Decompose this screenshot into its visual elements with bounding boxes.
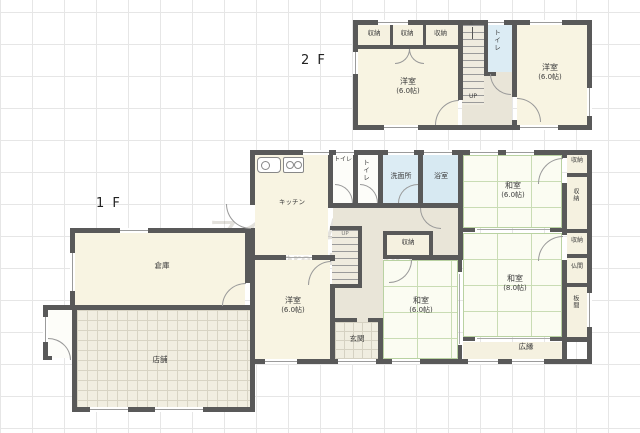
wall bbox=[567, 283, 587, 287]
window bbox=[303, 150, 329, 155]
wall bbox=[255, 255, 286, 260]
room-size: (6.0帖) bbox=[513, 73, 587, 81]
room-size: (6.0帖) bbox=[368, 87, 448, 95]
closet-label: 収納 bbox=[387, 239, 429, 246]
room-label: 浴室 bbox=[424, 172, 458, 180]
closet-label: 収納 bbox=[565, 238, 589, 245]
wall bbox=[250, 359, 255, 412]
window bbox=[90, 407, 128, 412]
room-label: 店舗 bbox=[138, 356, 182, 365]
closet-label: 収納 bbox=[565, 158, 589, 165]
sliding-door bbox=[477, 229, 550, 230]
wall bbox=[412, 255, 462, 260]
window bbox=[70, 253, 75, 291]
floor2-label: 2 F bbox=[301, 53, 327, 68]
partition-nub bbox=[458, 260, 462, 272]
room-name: 和室 bbox=[383, 296, 459, 305]
window bbox=[468, 359, 498, 364]
window bbox=[336, 150, 354, 155]
window bbox=[506, 150, 534, 155]
stairs-up-label: UP bbox=[333, 231, 357, 237]
stairs-up-arrow bbox=[472, 27, 473, 39]
window bbox=[384, 125, 418, 130]
wall bbox=[383, 231, 433, 235]
sink-bowl-icon bbox=[261, 161, 270, 170]
wall bbox=[562, 260, 567, 337]
butsuma-label: 仏間 bbox=[565, 264, 589, 271]
itanoma-label: 板間 bbox=[571, 295, 578, 333]
window bbox=[424, 150, 452, 155]
wall bbox=[512, 20, 517, 97]
room-size: (6.0帖) bbox=[383, 306, 459, 314]
window bbox=[488, 20, 504, 25]
room-label: 倉庫 bbox=[140, 262, 184, 271]
partition-nub bbox=[458, 345, 462, 359]
room-name: 洋室 bbox=[255, 296, 331, 305]
window bbox=[265, 359, 297, 364]
sliding-door bbox=[286, 257, 312, 258]
stairs-up-arrow-head: ▲ bbox=[469, 20, 474, 27]
toilet-label: トイレ bbox=[361, 159, 368, 201]
wall bbox=[562, 183, 567, 235]
wall bbox=[484, 20, 488, 76]
closet-label: 収納 bbox=[390, 30, 424, 37]
room-size: (6.0帖) bbox=[473, 191, 553, 199]
closet-label: 収納 bbox=[423, 30, 458, 37]
floor-plan-canvas: マイホームクラウド Powered by WebCAD.JP 1 F 2 F ▲… bbox=[0, 0, 640, 433]
room-size: (8.0帖) bbox=[475, 284, 555, 292]
wall bbox=[562, 342, 567, 364]
closet-label: 収納 bbox=[357, 30, 391, 37]
toilet-label: トイレ bbox=[332, 157, 354, 164]
wall bbox=[250, 150, 255, 205]
toilet-label: トイレ bbox=[492, 29, 499, 71]
partition-nub bbox=[550, 337, 562, 341]
wall bbox=[567, 173, 587, 177]
window bbox=[388, 150, 414, 155]
window bbox=[587, 293, 592, 327]
window bbox=[512, 359, 544, 364]
partition-nub bbox=[463, 228, 475, 232]
room-name: 洋室 bbox=[368, 77, 448, 86]
wall bbox=[567, 229, 587, 233]
window bbox=[470, 150, 498, 155]
room-size: (6.0帖) bbox=[255, 306, 331, 314]
partition-nub bbox=[463, 337, 475, 341]
sink-icon bbox=[257, 157, 281, 173]
room-name: 洋室 bbox=[513, 63, 587, 72]
stairs-1f bbox=[332, 230, 358, 284]
window bbox=[392, 359, 420, 364]
wall bbox=[587, 150, 592, 364]
window bbox=[530, 20, 562, 25]
room-label: 洗面所 bbox=[383, 172, 419, 180]
closet-label: 収納 bbox=[571, 188, 578, 224]
wall bbox=[72, 310, 77, 412]
room-name: 和室 bbox=[475, 274, 555, 283]
window bbox=[353, 52, 358, 74]
wall bbox=[567, 254, 587, 258]
wall bbox=[378, 318, 383, 359]
burner-icon bbox=[294, 161, 302, 169]
wall bbox=[335, 318, 357, 322]
stairs-up-label: UP bbox=[462, 94, 484, 101]
sliding-door bbox=[477, 338, 550, 339]
partition-nub bbox=[550, 228, 562, 232]
room-label: キッチン bbox=[265, 199, 319, 206]
burner-icon bbox=[286, 161, 294, 169]
wall bbox=[458, 20, 463, 100]
wall bbox=[70, 228, 255, 233]
stairs-wall bbox=[358, 226, 362, 288]
stove-icon bbox=[283, 157, 304, 173]
room-label: 広縁 bbox=[505, 343, 547, 352]
window bbox=[155, 407, 203, 412]
window bbox=[120, 228, 148, 233]
sliding-door bbox=[459, 274, 460, 344]
wall bbox=[333, 203, 463, 208]
wall bbox=[562, 150, 567, 158]
room-name: 和室 bbox=[473, 181, 553, 190]
entrance-sliding-door bbox=[338, 359, 376, 364]
window bbox=[587, 88, 592, 116]
window bbox=[520, 125, 558, 130]
window bbox=[378, 20, 408, 25]
floor1-label: 1 F bbox=[96, 196, 122, 211]
room-label: 玄関 bbox=[336, 335, 378, 344]
